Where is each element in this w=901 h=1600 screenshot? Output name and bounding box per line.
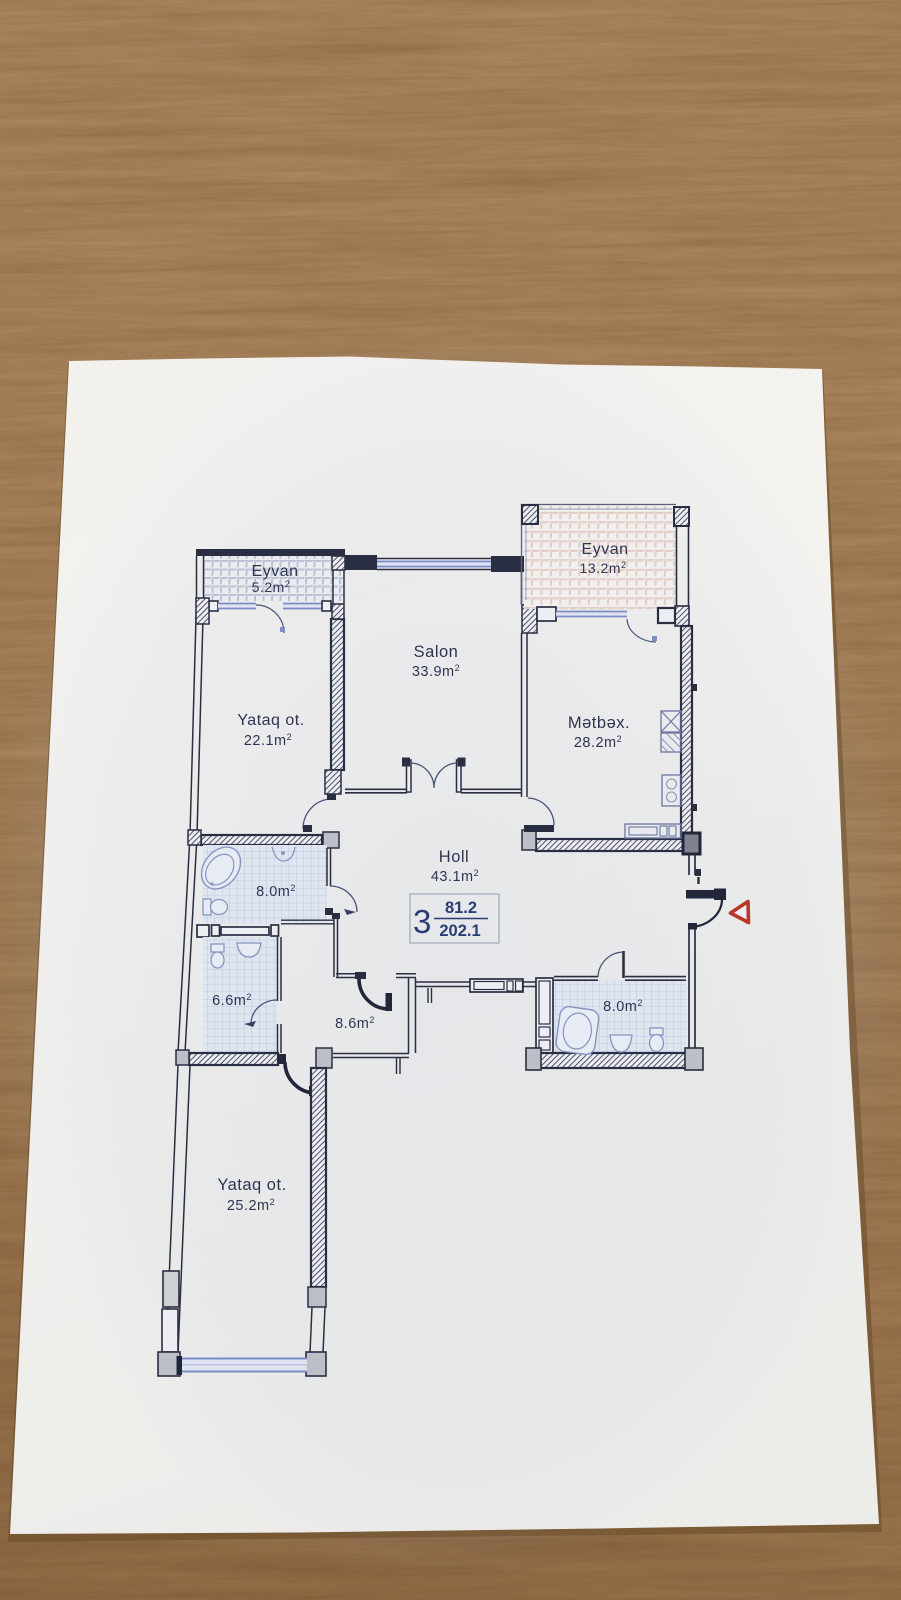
svg-text:6.6m2: 6.6m2 [212,992,252,1009]
svg-text:8.0m2: 8.0m2 [256,883,296,900]
svg-text:Mətbəx.: Mətbəx. [568,714,630,732]
svg-text:8.0m2: 8.0m2 [603,998,643,1015]
svg-text:Holl: Holl [439,848,469,866]
svg-text:Eyvan: Eyvan [252,563,299,580]
svg-text:8.6m2: 8.6m2 [335,1015,375,1032]
svg-text:43.1m2: 43.1m2 [431,868,479,885]
svg-text:81.2: 81.2 [445,899,477,917]
svg-text:202.1: 202.1 [439,922,480,940]
svg-text:Salon: Salon [414,643,459,661]
svg-text:25.2m2: 25.2m2 [227,1197,275,1214]
svg-text:Yataq ot.: Yataq ot. [217,1176,286,1194]
svg-text:Eyvan: Eyvan [582,541,629,558]
svg-text:5.2m2: 5.2m2 [252,579,291,595]
svg-text:Yataq ot.: Yataq ot. [237,712,304,729]
svg-text:28.2m2: 28.2m2 [574,734,622,751]
svg-text:33.9m2: 33.9m2 [412,663,460,680]
svg-text:13.2m2: 13.2m2 [580,560,627,576]
svg-text:22.1m2: 22.1m2 [244,732,292,749]
svg-text:3: 3 [413,903,431,940]
